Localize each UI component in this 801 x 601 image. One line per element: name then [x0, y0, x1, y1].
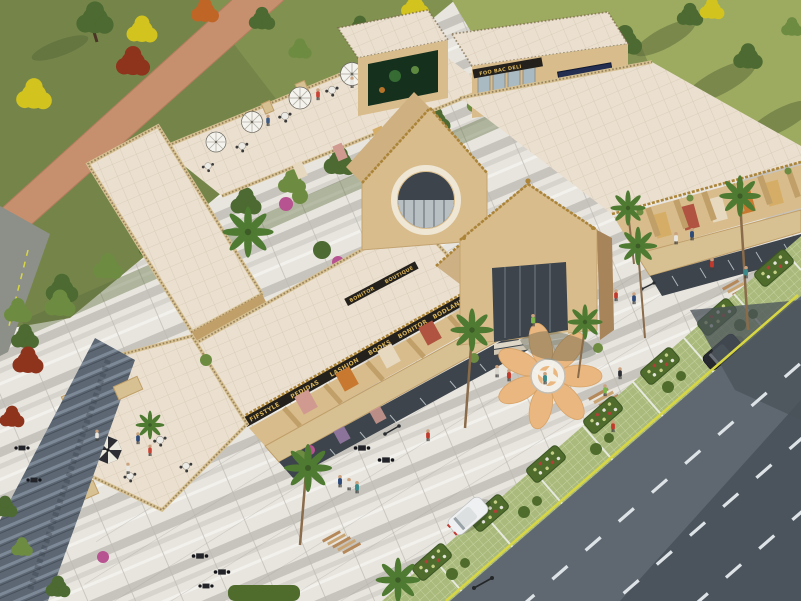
finial-ornament: [525, 178, 530, 183]
hedge: [228, 585, 300, 601]
court-palm: [222, 206, 273, 257]
bougainvillea: [279, 197, 293, 211]
architectural-rendering: FOO BAC DELI BONITOR: [0, 0, 801, 601]
